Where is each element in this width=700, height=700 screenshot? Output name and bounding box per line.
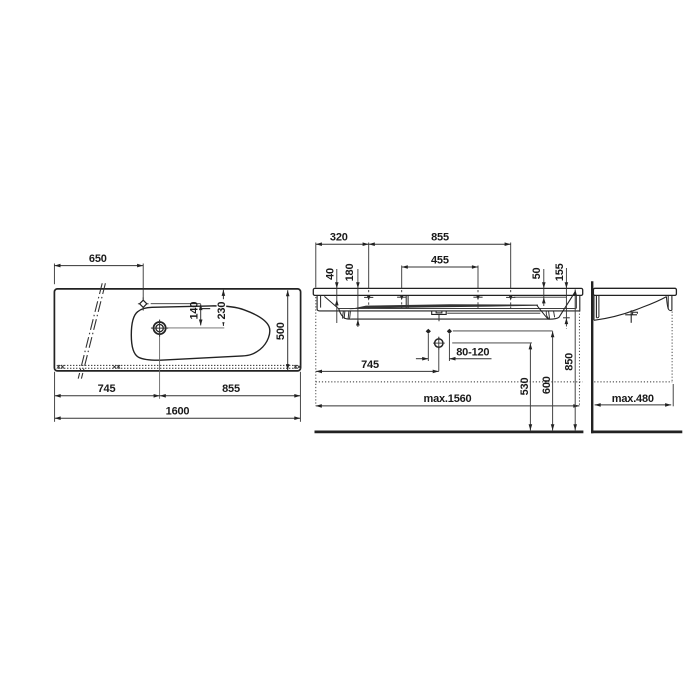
svg-text:530: 530 — [519, 378, 531, 396]
svg-text:745: 745 — [361, 359, 379, 371]
svg-text:600: 600 — [541, 376, 553, 394]
svg-text:230: 230 — [216, 302, 228, 320]
svg-text:855: 855 — [222, 383, 240, 395]
svg-text:40: 40 — [324, 268, 336, 280]
svg-text:max.480: max.480 — [612, 393, 654, 405]
svg-text:50: 50 — [531, 268, 543, 280]
svg-text:500: 500 — [275, 322, 287, 340]
svg-text:320: 320 — [330, 231, 348, 243]
svg-text:140: 140 — [188, 302, 200, 320]
svg-text:max.1560: max.1560 — [424, 393, 472, 405]
svg-text:650: 650 — [89, 253, 107, 265]
svg-text:850: 850 — [564, 353, 576, 371]
svg-text:455: 455 — [431, 254, 449, 266]
svg-text:80-120: 80-120 — [456, 347, 489, 359]
svg-text:855: 855 — [431, 231, 449, 243]
svg-text:1600: 1600 — [166, 405, 190, 417]
svg-text:180: 180 — [344, 264, 356, 282]
svg-text:155: 155 — [554, 263, 566, 281]
svg-text:745: 745 — [98, 383, 116, 395]
